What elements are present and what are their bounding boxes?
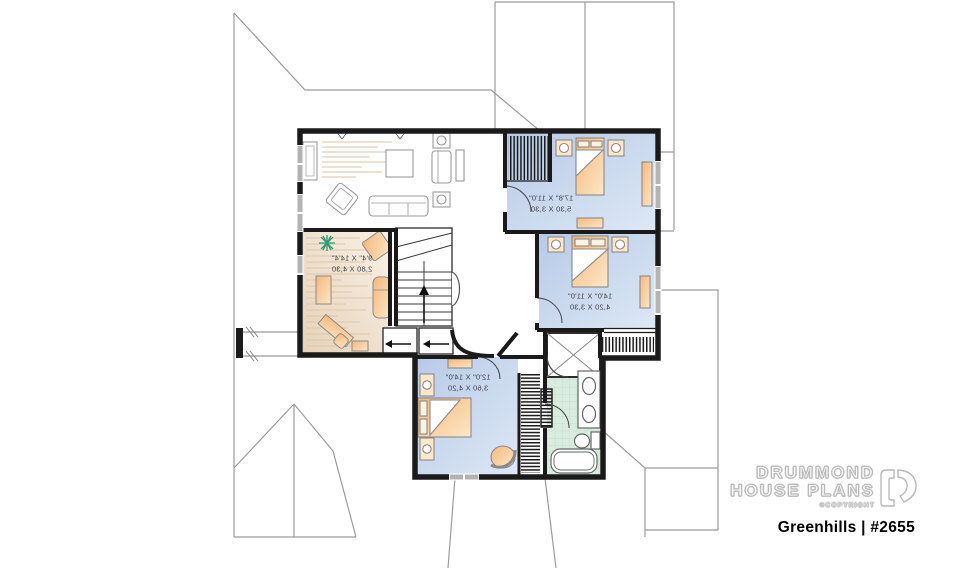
tall-dresser (642, 162, 652, 206)
room-dimensions-bedroom-2: 14'0" X 11'0" 4,20 X 3,30 (568, 292, 612, 313)
bedroom-3-window (449, 474, 479, 481)
brand-name-line1: DRUMMOND (730, 464, 875, 482)
brand-logo: DRUMMOND HOUSE PLANS ©COPYRIGHT (730, 464, 875, 509)
toilet-tank (591, 432, 600, 449)
room-dimensions-sitting-area: 9'4" X 14'4" 2,80 X 4,30 (332, 254, 373, 275)
bedroom-2-window (655, 266, 662, 315)
bedroom-1-imperial: 17'8" X 11'0" (529, 194, 573, 205)
plan-title: Greenhills | #2655 (778, 519, 915, 537)
bedroom-1-window (655, 161, 662, 209)
den-window (297, 255, 304, 275)
bedroom-3-closet-hatch (521, 374, 540, 473)
coffee-table (386, 150, 413, 177)
den-ottoman (352, 341, 368, 351)
sofa (369, 196, 428, 216)
dresser (640, 276, 650, 308)
brand-name-line2: HOUSE PLANS (730, 482, 875, 500)
bedroom-1-metric: 5,30 X 3,30 (529, 204, 573, 215)
floor-plan-canvas: 17'8" X 11'0" 5,30 X 3,30 14'0" X 11'0" … (0, 0, 960, 569)
dresser (577, 218, 603, 228)
wall-continuation-left (236, 327, 298, 361)
room-dimensions-bedroom-1: 17'8" X 11'0" 5,30 X 3,30 (529, 194, 573, 215)
den-bench (316, 276, 331, 304)
roof-bottom-center (448, 478, 556, 568)
room-dimensions-bedroom-3: 12'0" X 14'0" 3,60 X 4,20 (446, 373, 491, 394)
plant (319, 235, 335, 251)
living-window-1 (297, 145, 304, 182)
lamp-top (437, 136, 446, 145)
bedroom-3-imperial: 12'0" X 14'0" (446, 373, 491, 384)
bedroom-2-closet-hatch (602, 337, 654, 352)
roof-top-hip (234, 13, 540, 131)
drummond-d-icon (880, 462, 918, 512)
roof-bottom-left-gable (234, 404, 356, 537)
console-table (456, 150, 464, 181)
sink (583, 406, 596, 423)
living-window-2 (297, 194, 304, 232)
sitting-area-metric: 2,80 X 4,30 (332, 264, 373, 275)
loveseat (432, 151, 451, 183)
bedroom-2-imperial: 14'0" X 11'0" (568, 292, 612, 303)
staircase (396, 228, 460, 326)
sitting-area-imperial: 9'4" X 14'4" (332, 254, 373, 265)
shelf (448, 359, 472, 368)
bedroom-1-closet-hatch (508, 136, 548, 180)
bedroom-3-metric: 3,60 X 4,20 (446, 383, 491, 394)
brand-copyright: ©COPYRIGHT (730, 502, 875, 509)
toilet-bowl (575, 434, 590, 448)
corner-chair (491, 446, 515, 468)
sink (583, 378, 596, 395)
bedroom-2-metric: 4,20 X 3,30 (568, 302, 612, 313)
lamp-bottom (437, 195, 446, 204)
